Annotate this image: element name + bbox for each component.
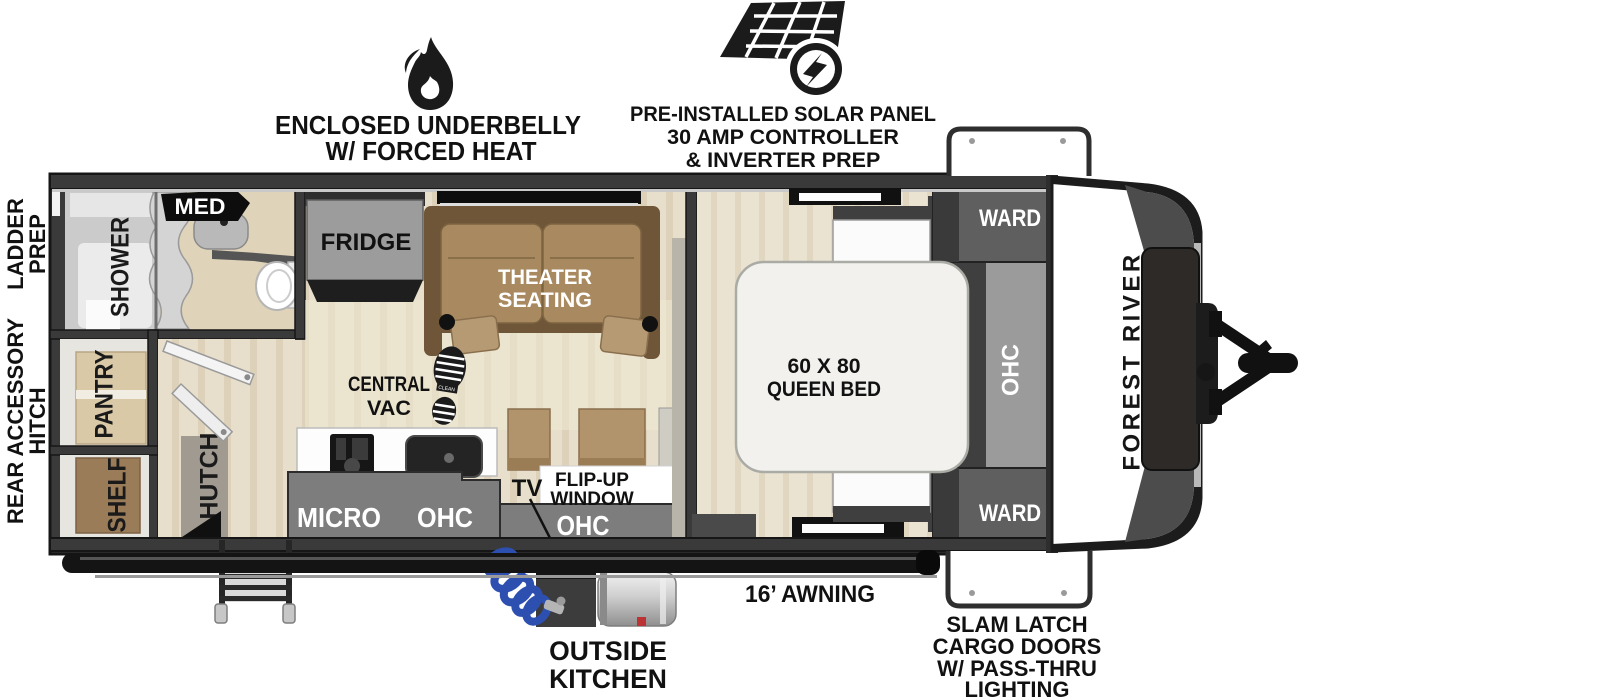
svg-text:OHC: OHC: [997, 344, 1024, 396]
svg-text:SHELF: SHELF: [104, 458, 132, 533]
svg-text:QUEEN BED: QUEEN BED: [767, 377, 881, 401]
svg-text:KITCHEN: KITCHEN: [549, 664, 667, 694]
svg-text:PREP: PREP: [25, 214, 50, 274]
svg-text:MED: MED: [175, 194, 226, 219]
svg-text:HUTCH: HUTCH: [196, 433, 224, 520]
svg-text:CENTRAL: CENTRAL: [348, 373, 430, 396]
svg-text:FRIDGE: FRIDGE: [321, 229, 412, 256]
svg-text:WARD: WARD: [979, 205, 1041, 232]
svg-text:SEATING: SEATING: [498, 289, 592, 312]
svg-text:OUTSIDE: OUTSIDE: [549, 636, 667, 666]
svg-text:60 X 80: 60 X 80: [788, 354, 861, 378]
svg-text:MICRO: MICRO: [297, 502, 381, 533]
svg-text:FLIP-UP: FLIP-UP: [555, 470, 629, 491]
svg-text:PRE-INSTALLED SOLAR PANEL: PRE-INSTALLED SOLAR PANEL: [630, 102, 936, 126]
svg-text:LIGHTING: LIGHTING: [964, 677, 1069, 697]
svg-text:W/ FORCED HEAT: W/ FORCED HEAT: [326, 136, 537, 166]
svg-text:THEATER: THEATER: [498, 266, 592, 289]
svg-text:HITCH: HITCH: [25, 387, 50, 454]
svg-text:VAC: VAC: [367, 397, 411, 420]
svg-text:16’ AWNING: 16’ AWNING: [745, 581, 875, 608]
svg-text:30 AMP CONTROLLER: 30 AMP CONTROLLER: [667, 125, 899, 149]
svg-text:OHC: OHC: [417, 502, 473, 533]
svg-text:WARD: WARD: [979, 500, 1041, 527]
svg-text:OHC: OHC: [557, 510, 610, 541]
svg-text:PANTRY: PANTRY: [91, 349, 119, 438]
svg-text:& INVERTER PREP: & INVERTER PREP: [686, 148, 881, 172]
svg-text:TV: TV: [512, 475, 543, 502]
svg-text:WINDOW: WINDOW: [550, 489, 633, 510]
svg-text:SHOWER: SHOWER: [107, 217, 135, 317]
